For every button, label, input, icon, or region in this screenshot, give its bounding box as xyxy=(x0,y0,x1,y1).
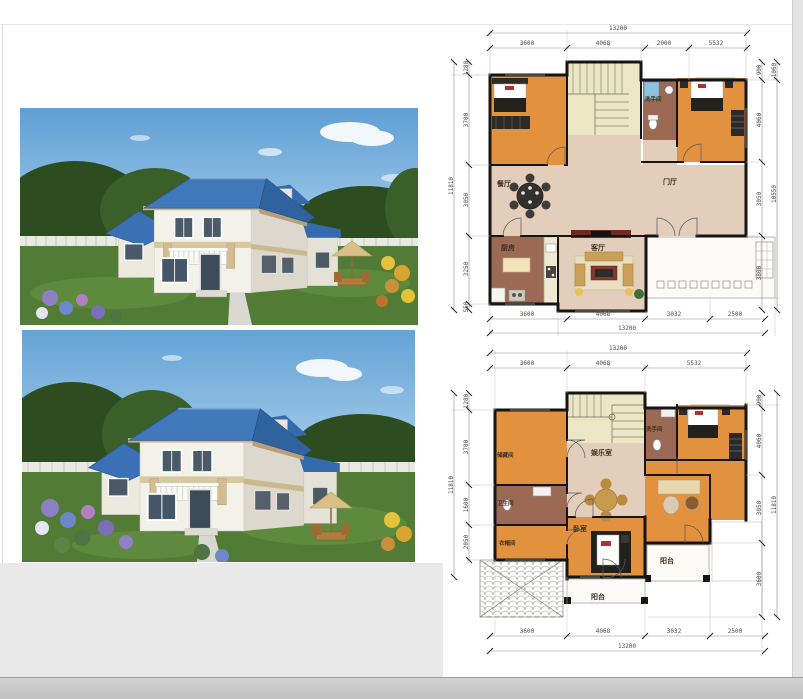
vertical-scrollbar[interactable] xyxy=(792,0,803,677)
svg-text:13200: 13200 xyxy=(618,643,636,650)
svg-text:13200: 13200 xyxy=(609,345,627,352)
room-label-toilet: 卫生间 xyxy=(497,499,514,507)
svg-text:1280: 1280 xyxy=(463,393,470,408)
svg-text:3600: 3600 xyxy=(520,360,535,367)
svg-text:900: 900 xyxy=(756,394,763,405)
svg-text:3600: 3600 xyxy=(756,571,763,586)
svg-text:5532: 5532 xyxy=(687,360,702,367)
svg-text:3700: 3700 xyxy=(463,439,470,454)
svg-text:550: 550 xyxy=(463,301,470,312)
dim-chain-right: 900 4060 3050 3600 11810 xyxy=(756,390,780,620)
page-background-gray xyxy=(0,563,443,677)
svg-text:4068: 4068 xyxy=(596,311,611,318)
svg-text:3032: 3032 xyxy=(667,628,682,635)
svg-text:3700: 3700 xyxy=(463,112,470,127)
room-label-living: 客厅 xyxy=(590,243,605,252)
floor-plan-1: 餐厅 门厅 厨房 客厅 洗手间 13200 3600 4068 2000 553… xyxy=(445,18,803,348)
room-label-bedroom: 卧室 xyxy=(573,524,587,533)
svg-text:4068: 4068 xyxy=(596,628,611,635)
svg-text:3050: 3050 xyxy=(756,500,763,515)
svg-text:3600: 3600 xyxy=(520,40,535,47)
svg-text:10550: 10550 xyxy=(771,185,778,203)
svg-text:3032: 3032 xyxy=(667,311,682,318)
svg-text:4068: 4068 xyxy=(596,360,611,367)
svg-text:3050: 3050 xyxy=(756,191,763,206)
svg-text:1060: 1060 xyxy=(771,62,778,77)
svg-text:2500: 2500 xyxy=(728,628,743,635)
svg-text:4060: 4060 xyxy=(756,433,763,448)
floor-plan-2: 储藏间 洗手间 娱乐室 卫生间 衣帽间 卧室 阳台 阳台 13200 3600 … xyxy=(445,345,803,677)
room-label-dining: 餐厅 xyxy=(496,179,511,188)
dim-chain-top: 13200 3600 4068 2000 5532 xyxy=(487,25,750,51)
svg-text:3600: 3600 xyxy=(520,628,535,635)
room-label-kitchen: 厨房 xyxy=(501,243,515,252)
svg-text:3600: 3600 xyxy=(520,311,535,318)
svg-text:4060: 4060 xyxy=(756,112,763,127)
room-label-foyer: 门厅 xyxy=(663,177,677,186)
room-label-balcony-right: 阳台 xyxy=(660,556,674,565)
dim-chain-top: 13200 3600 4068 5532 xyxy=(487,345,750,371)
dim-chain-left: 11810 1280 3700 3050 3250 550 xyxy=(448,59,472,313)
svg-text:1280: 1280 xyxy=(463,60,470,75)
exterior-rendering-1 xyxy=(20,108,418,325)
bed xyxy=(492,78,530,129)
exterior-rendering-2 xyxy=(22,330,415,562)
dim-chain-left: 11810 1280 3700 1600 2050 xyxy=(448,390,472,580)
balcony-bottom-area xyxy=(564,579,648,604)
design-sheet-viewer: 餐厅 门厅 厨房 客厅 洗手间 13200 3600 4068 2000 553… xyxy=(0,0,803,699)
room-label-balcony-bottom: 阳台 xyxy=(591,592,605,601)
svg-text:13200: 13200 xyxy=(618,325,636,332)
dim-chain-bottom: 3600 4068 3032 2500 13200 xyxy=(487,311,768,336)
svg-text:11810: 11810 xyxy=(771,496,778,514)
svg-text:4068: 4068 xyxy=(596,40,611,47)
svg-text:11810: 11810 xyxy=(448,476,455,494)
room-label-bathroom: 洗手间 xyxy=(645,95,662,103)
dim-chain-bottom: 3600 4068 3032 2500 13200 xyxy=(487,628,768,654)
bed xyxy=(591,531,631,573)
room-label-bathroom-right: 洗手间 xyxy=(646,425,663,433)
svg-text:11810: 11810 xyxy=(448,177,455,195)
room-label-storage: 储藏间 xyxy=(496,451,514,459)
roof-hatch xyxy=(480,560,563,617)
svg-text:5532: 5532 xyxy=(709,40,724,47)
svg-text:3050: 3050 xyxy=(463,192,470,207)
room-label-recreation: 娱乐室 xyxy=(591,448,612,457)
room-label-cloakroom: 衣帽间 xyxy=(499,539,516,547)
window-bottom-bar xyxy=(0,677,803,699)
svg-text:2050: 2050 xyxy=(463,534,470,549)
svg-text:13200: 13200 xyxy=(609,25,627,32)
svg-text:3800: 3800 xyxy=(756,265,763,280)
svg-text:3250: 3250 xyxy=(463,261,470,276)
svg-text:2500: 2500 xyxy=(728,311,743,318)
svg-text:2000: 2000 xyxy=(657,40,672,47)
svg-text:1600: 1600 xyxy=(463,497,470,512)
svg-text:900: 900 xyxy=(756,64,763,75)
